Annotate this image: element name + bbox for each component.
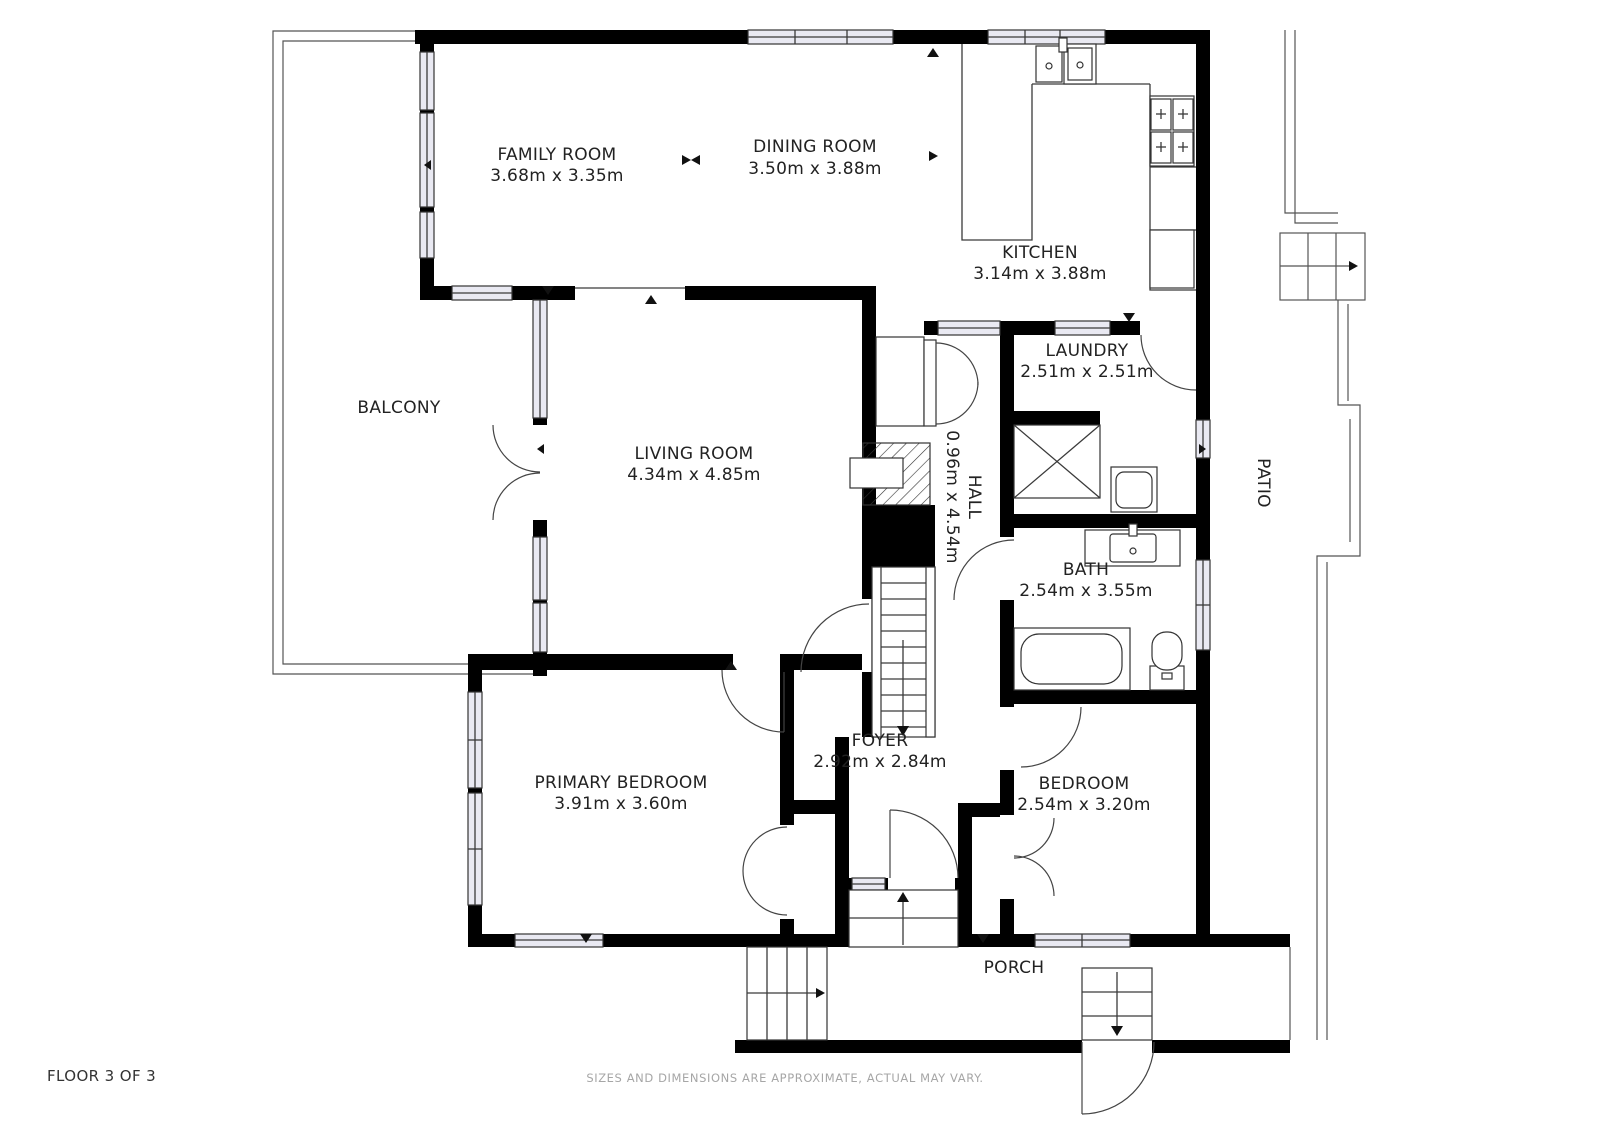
porch-left-stairs bbox=[747, 947, 827, 1040]
room-dims-kitchen: 3.14m x 3.88m bbox=[973, 264, 1107, 284]
room-dims-family-room: 3.68m x 3.35m bbox=[490, 166, 624, 186]
room-dims-hall: 0.96m x 4.54m bbox=[942, 430, 962, 564]
floor-plan-page: FAMILY ROOM 3.68m x 3.35m DINING ROOM 3.… bbox=[0, 0, 1600, 1131]
room-dims-bedroom: 2.54m x 3.20m bbox=[1017, 795, 1151, 815]
stove bbox=[1150, 96, 1194, 166]
kitchen-sink bbox=[1036, 38, 1096, 84]
room-dims-primary-bedroom: 3.91m x 3.60m bbox=[554, 794, 688, 814]
patio-stairs bbox=[1280, 233, 1365, 300]
bedroom-closet-doors bbox=[1014, 818, 1054, 896]
hall-closet bbox=[876, 337, 978, 426]
dishwasher bbox=[1150, 230, 1194, 288]
room-dims-living-room: 4.34m x 4.85m bbox=[627, 465, 761, 485]
bathtub bbox=[1014, 628, 1130, 690]
room-label-foyer: FOYER bbox=[852, 731, 909, 751]
floor-indicator: FLOOR 3 OF 3 bbox=[47, 1067, 156, 1085]
toilet bbox=[1150, 632, 1184, 690]
porch-right-steps bbox=[1082, 968, 1152, 1040]
room-label-porch: PORCH bbox=[984, 958, 1045, 978]
patio-outline bbox=[1285, 30, 1360, 1040]
disclaimer-text: SIZES AND DIMENSIONS ARE APPROXIMATE, AC… bbox=[586, 1071, 983, 1085]
room-label-patio: PATIO bbox=[1253, 458, 1273, 508]
room-label-family-room: FAMILY ROOM bbox=[497, 145, 616, 165]
washer bbox=[1111, 467, 1157, 512]
bedroom-door bbox=[1021, 707, 1081, 767]
room-label-bath: BATH bbox=[1063, 560, 1109, 580]
room-label-primary-bedroom: PRIMARY BEDROOM bbox=[534, 773, 707, 793]
floor-plan-canvas: FAMILY ROOM 3.68m x 3.35m DINING ROOM 3.… bbox=[0, 0, 1600, 1131]
room-dims-bath: 2.54m x 3.55m bbox=[1019, 581, 1153, 601]
room-dims-foyer: 2.92m x 2.84m bbox=[813, 752, 947, 772]
room-dims-dining-room: 3.50m x 3.88m bbox=[748, 159, 882, 179]
room-label-bedroom: BEDROOM bbox=[1039, 774, 1130, 794]
room-label-hall: HALL bbox=[964, 475, 984, 520]
balcony-outline bbox=[273, 31, 533, 674]
room-label-balcony: BALCONY bbox=[357, 398, 441, 418]
footer: FLOOR 3 OF 3 SIZES AND DIMENSIONS ARE AP… bbox=[47, 1067, 984, 1085]
room-label-living-room: LIVING ROOM bbox=[635, 444, 754, 464]
shower bbox=[1014, 425, 1100, 498]
room-label-dining-room: DINING ROOM bbox=[753, 137, 877, 157]
room-label-kitchen: KITCHEN bbox=[1002, 243, 1078, 263]
porch-gate-door bbox=[1082, 1042, 1154, 1114]
room-label-laundry: LAUNDRY bbox=[1046, 341, 1129, 361]
front-door bbox=[890, 810, 958, 878]
hall-stairs bbox=[872, 567, 935, 737]
primary-bedroom-door bbox=[722, 670, 784, 732]
room-dims-laundry: 2.51m x 2.51m bbox=[1020, 362, 1154, 382]
balcony-double-door bbox=[493, 425, 540, 520]
entry-steps bbox=[849, 890, 958, 947]
